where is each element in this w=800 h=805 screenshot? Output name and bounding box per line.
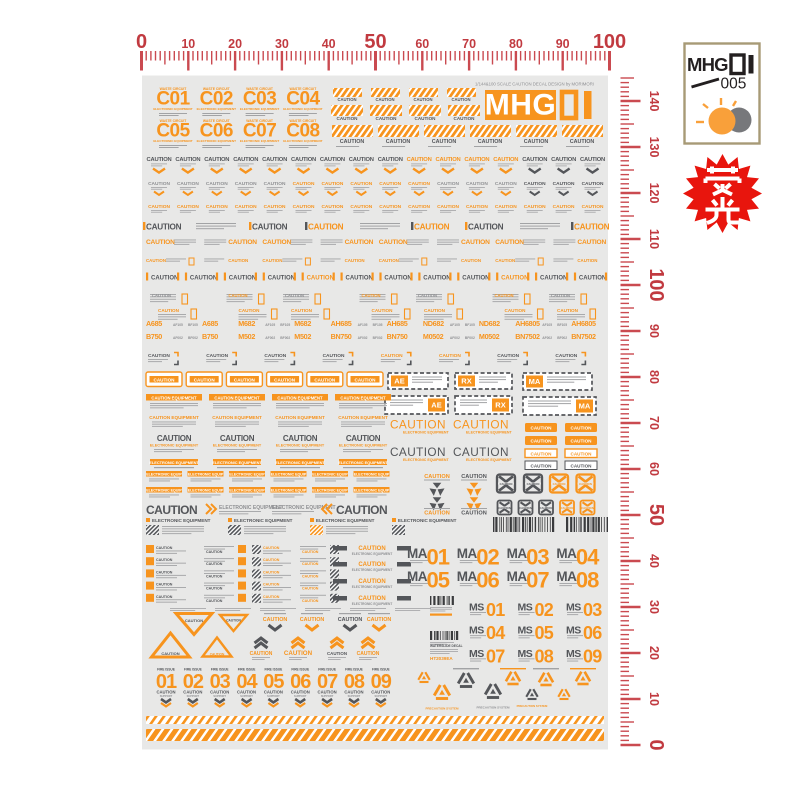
svg-text:CAUTION: CAUTION bbox=[338, 617, 363, 623]
svg-text:CAUTION: CAUTION bbox=[175, 157, 200, 163]
svg-text:ELECTRONIC EQUIP: ELECTRONIC EQUIP bbox=[188, 472, 224, 476]
svg-text:CAUTION: CAUTION bbox=[156, 570, 173, 574]
svg-text:01: 01 bbox=[427, 545, 450, 570]
svg-text:CAUTION: CAUTION bbox=[390, 445, 446, 459]
svg-text:CAUTION: CAUTION bbox=[571, 439, 593, 444]
svg-text:M0502: M0502 bbox=[479, 332, 500, 341]
svg-text:BN7502: BN7502 bbox=[571, 332, 596, 341]
svg-text:CAUTION: CAUTION bbox=[293, 204, 315, 210]
svg-text:CAUTION: CAUTION bbox=[264, 353, 286, 359]
svg-text:ELECTRONIC EQUIPMENT: ELECTRONIC EQUIPMENT bbox=[149, 460, 199, 465]
svg-text:CAUTION: CAUTION bbox=[349, 157, 374, 163]
svg-text:CAUTION: CAUTION bbox=[220, 434, 255, 443]
svg-text:CAUTION: CAUTION bbox=[577, 239, 606, 246]
svg-text:CAUTION: CAUTION bbox=[379, 204, 401, 210]
svg-text:MA: MA bbox=[407, 546, 428, 561]
svg-text:CAUTION: CAUTION bbox=[274, 378, 296, 383]
svg-text:CAUTION: CAUTION bbox=[478, 139, 503, 145]
svg-text:AF105: AF105 bbox=[265, 323, 275, 327]
svg-text:CAUTION: CAUTION bbox=[579, 276, 606, 282]
svg-text:CAUTION: CAUTION bbox=[505, 308, 527, 313]
svg-text:MS: MS bbox=[518, 648, 533, 660]
svg-text:CAUTION: CAUTION bbox=[283, 434, 318, 443]
svg-text:CAUTION: CAUTION bbox=[453, 445, 509, 459]
svg-text:CAUTION: CAUTION bbox=[580, 157, 605, 163]
svg-text:AF002: AF002 bbox=[358, 336, 368, 340]
svg-text:MA: MA bbox=[457, 546, 478, 561]
svg-text:CAUTION EQUIPMENT: CAUTION EQUIPMENT bbox=[149, 415, 199, 420]
svg-text:AF105: AF105 bbox=[542, 323, 552, 327]
svg-text:MA: MA bbox=[507, 546, 528, 561]
svg-text:ELECTRONIC EQUIPMENT: ELECTRONIC EQUIPMENT bbox=[339, 444, 388, 448]
svg-text:ELECTRONIC EQUIPMENT: ELECTRONIC EQUIPMENT bbox=[152, 518, 211, 523]
svg-text:CAUTION: CAUTION bbox=[263, 583, 280, 587]
svg-text:140: 140 bbox=[647, 91, 661, 112]
svg-text:ELECTRONIC EQUIPMENT: ELECTRONIC EQUIPMENT bbox=[240, 107, 279, 111]
svg-text:20: 20 bbox=[647, 646, 661, 660]
svg-text:ELECTRONIC EQUIPMENT: ELECTRONIC EQUIPMENT bbox=[234, 518, 293, 523]
svg-text:RX: RX bbox=[495, 401, 505, 410]
svg-text:CAUTION: CAUTION bbox=[264, 204, 286, 210]
svg-text:MHG: MHG bbox=[687, 54, 728, 75]
svg-text:MS: MS bbox=[566, 602, 581, 614]
svg-text:CAUTION: CAUTION bbox=[158, 308, 180, 313]
svg-text:CAUTION: CAUTION bbox=[206, 587, 223, 591]
svg-text:MS: MS bbox=[518, 602, 533, 614]
svg-text:CAUTION: CAUTION bbox=[146, 258, 166, 263]
svg-text:CAUTION: CAUTION bbox=[194, 378, 216, 383]
svg-text:CAUTION: CAUTION bbox=[206, 204, 228, 210]
svg-text:HT2039EA: HT2039EA bbox=[430, 656, 453, 661]
svg-text:BF002: BF002 bbox=[373, 336, 383, 340]
svg-text:CAUTION: CAUTION bbox=[229, 293, 248, 298]
svg-text:CAUTION: CAUTION bbox=[571, 451, 593, 456]
svg-text:CAUTION: CAUTION bbox=[262, 157, 287, 163]
svg-text:ELECTRONIC EQUIPMENT: ELECTRONIC EQUIPMENT bbox=[398, 518, 457, 523]
svg-text:CAUTION: CAUTION bbox=[263, 595, 280, 599]
svg-text:ELECTRONIC EQUIPMENT: ELECTRONIC EQUIPMENT bbox=[197, 107, 236, 111]
svg-text:CAUTION: CAUTION bbox=[386, 139, 411, 145]
svg-text:ELECTRONIC EQUIPMENT: ELECTRONIC EQUIPMENT bbox=[283, 107, 322, 111]
svg-text:BF002: BF002 bbox=[465, 336, 475, 340]
svg-text:MS: MS bbox=[566, 648, 581, 660]
svg-text:CAUTION: CAUTION bbox=[357, 651, 380, 657]
svg-text:CAUTION: CAUTION bbox=[350, 204, 372, 210]
svg-text:CAUTION: CAUTION bbox=[424, 308, 446, 313]
svg-text:BF105: BF105 bbox=[280, 323, 290, 327]
svg-text:CAUTION: CAUTION bbox=[263, 558, 280, 562]
svg-text:05: 05 bbox=[427, 568, 450, 593]
svg-text:CAUTION: CAUTION bbox=[424, 474, 449, 480]
svg-text:ELECTRONIC EQUIP: ELECTRONIC EQUIP bbox=[354, 488, 390, 492]
svg-text:01: 01 bbox=[486, 600, 505, 620]
svg-text:BN7502: BN7502 bbox=[515, 332, 540, 341]
svg-text:CAUTION: CAUTION bbox=[337, 116, 359, 121]
svg-text:CAUTION: CAUTION bbox=[551, 157, 576, 163]
svg-text:ELECTRONIC EQUIPMENT: ELECTRONIC EQUIPMENT bbox=[338, 460, 388, 465]
svg-text:CAUTION: CAUTION bbox=[146, 157, 171, 163]
svg-text:ELECTRONIC EQUIPMENT: ELECTRONIC EQUIPMENT bbox=[352, 552, 393, 556]
svg-text:CAUTION: CAUTION bbox=[561, 506, 574, 510]
svg-text:CAUTION: CAUTION bbox=[148, 353, 170, 359]
svg-text:60: 60 bbox=[415, 37, 429, 51]
svg-text:CAUTION: CAUTION bbox=[337, 97, 356, 102]
svg-text:CAUTION: CAUTION bbox=[183, 690, 202, 695]
svg-text:CAUTION: CAUTION bbox=[234, 378, 256, 383]
svg-text:CAUTION: CAUTION bbox=[413, 97, 432, 102]
svg-text:CAUTION: CAUTION bbox=[464, 157, 489, 163]
svg-text:ELECTRONIC EQUIPMENT: ELECTRONIC EQUIPMENT bbox=[466, 431, 513, 435]
svg-text:CAUTION: CAUTION bbox=[345, 258, 365, 263]
svg-text:CAUTION: CAUTION bbox=[177, 181, 199, 187]
svg-text:80: 80 bbox=[647, 370, 661, 384]
svg-text:CAUTION: CAUTION bbox=[302, 562, 319, 566]
svg-text:100: 100 bbox=[593, 31, 626, 53]
svg-text:CAUTION: CAUTION bbox=[291, 157, 316, 163]
svg-text:RX: RX bbox=[461, 377, 471, 386]
svg-text:ND682: ND682 bbox=[479, 319, 500, 328]
svg-text:WATERSLIDE DECAL: WATERSLIDE DECAL bbox=[430, 644, 463, 648]
svg-text:CAUTION: CAUTION bbox=[346, 276, 373, 282]
svg-text:CAUTION: CAUTION bbox=[376, 116, 398, 121]
svg-text:CAUTION: CAUTION bbox=[285, 293, 304, 298]
svg-text:CAUTION: CAUTION bbox=[237, 690, 256, 695]
svg-text:CAUTION: CAUTION bbox=[414, 223, 450, 232]
svg-text:CAUTION: CAUTION bbox=[345, 239, 374, 246]
svg-text:CAUTION: CAUTION bbox=[264, 181, 286, 187]
svg-text:BF002: BF002 bbox=[188, 336, 198, 340]
svg-text:03: 03 bbox=[526, 545, 549, 570]
svg-text:CAUTION: CAUTION bbox=[454, 116, 476, 121]
svg-text:CAUTION: CAUTION bbox=[185, 618, 203, 623]
svg-text:CAUTION: CAUTION bbox=[252, 223, 288, 232]
svg-text:CAUTION: CAUTION bbox=[367, 617, 392, 623]
svg-text:ELECTRONIC EQUIP: ELECTRONIC EQUIP bbox=[188, 488, 224, 492]
svg-text:08: 08 bbox=[576, 568, 599, 593]
svg-text:02: 02 bbox=[535, 600, 554, 620]
svg-text:M682: M682 bbox=[294, 319, 311, 328]
svg-text:CAUTION EQUIPMENT: CAUTION EQUIPMENT bbox=[275, 415, 325, 420]
svg-text:CAUTION: CAUTION bbox=[531, 451, 553, 456]
svg-text:CAUTION: CAUTION bbox=[574, 223, 610, 232]
svg-text:CAUTION: CAUTION bbox=[263, 570, 280, 574]
svg-text:70: 70 bbox=[647, 416, 661, 430]
svg-text:CAUTION: CAUTION bbox=[423, 276, 450, 282]
svg-text:CAUTION: CAUTION bbox=[320, 157, 345, 163]
svg-text:CAUTION: CAUTION bbox=[154, 378, 176, 383]
svg-text:CAUTION: CAUTION bbox=[581, 506, 594, 510]
svg-text:CAUTION: CAUTION bbox=[501, 276, 528, 282]
svg-text:CAUTION: CAUTION bbox=[151, 276, 178, 282]
svg-text:CAUTION: CAUTION bbox=[408, 181, 430, 187]
svg-text:CAUTION: CAUTION bbox=[148, 181, 170, 187]
svg-text:20: 20 bbox=[228, 37, 242, 51]
svg-text:CAUTION: CAUTION bbox=[379, 239, 408, 246]
svg-text:ELECTRONIC EQUIPMENT: ELECTRONIC EQUIPMENT bbox=[153, 139, 192, 143]
svg-text:CAUTION: CAUTION bbox=[318, 690, 337, 695]
svg-text:CAUTION: CAUTION bbox=[495, 204, 517, 210]
svg-text:0: 0 bbox=[136, 31, 147, 53]
svg-text:CAUTION: CAUTION bbox=[375, 97, 394, 102]
svg-text:A685: A685 bbox=[146, 319, 162, 328]
svg-text:MS: MS bbox=[469, 625, 484, 637]
svg-text:SUPPORT: SUPPORT bbox=[187, 694, 200, 698]
svg-text:07: 07 bbox=[526, 568, 549, 593]
svg-text:10: 10 bbox=[647, 692, 661, 706]
svg-text:CAUTION EQUIPMENT: CAUTION EQUIPMENT bbox=[151, 396, 197, 401]
svg-text:CAUTION: CAUTION bbox=[579, 482, 592, 486]
svg-text:AF105: AF105 bbox=[450, 323, 460, 327]
svg-text:CAUTION: CAUTION bbox=[291, 308, 313, 313]
svg-text:90: 90 bbox=[556, 37, 570, 51]
svg-text:CAUTION: CAUTION bbox=[432, 139, 457, 145]
svg-text:A685: A685 bbox=[202, 319, 218, 328]
svg-text:CAUTION: CAUTION bbox=[302, 550, 319, 554]
svg-text:ELECTRONIC EQUIP: ELECTRONIC EQUIP bbox=[271, 472, 307, 476]
svg-text:05: 05 bbox=[535, 623, 554, 643]
svg-text:CAUTION: CAUTION bbox=[418, 293, 437, 298]
svg-text:60: 60 bbox=[647, 462, 661, 476]
svg-text:CAUTION: CAUTION bbox=[302, 587, 319, 591]
svg-text:ELECTRONIC EQUIPMENT: ELECTRONIC EQUIPMENT bbox=[276, 444, 325, 448]
svg-text:CAUTION: CAUTION bbox=[468, 223, 504, 232]
svg-text:MA: MA bbox=[457, 569, 478, 584]
svg-text:CAUTION: CAUTION bbox=[497, 353, 519, 359]
svg-text:PRECAUTION SYSTEM: PRECAUTION SYSTEM bbox=[517, 704, 548, 708]
svg-text:06: 06 bbox=[476, 568, 499, 593]
svg-text:120: 120 bbox=[647, 183, 661, 204]
svg-text:CAUTION: CAUTION bbox=[146, 503, 197, 517]
svg-text:CAUTION: CAUTION bbox=[378, 157, 403, 163]
svg-text:CAUTION: CAUTION bbox=[461, 474, 486, 480]
svg-text:CAUTION: CAUTION bbox=[314, 378, 336, 383]
svg-text:M502: M502 bbox=[294, 332, 311, 341]
svg-text:BN750: BN750 bbox=[331, 332, 352, 341]
svg-text:CAUTION EQUIPMENT: CAUTION EQUIPMENT bbox=[338, 415, 388, 420]
svg-text:MS: MS bbox=[518, 625, 533, 637]
svg-text:MHG: MHG bbox=[485, 89, 557, 122]
svg-text:CAUTION: CAUTION bbox=[156, 595, 173, 599]
svg-text:MA: MA bbox=[556, 546, 577, 561]
svg-text:CAUTION: CAUTION bbox=[381, 353, 403, 359]
svg-text:CAUTION: CAUTION bbox=[284, 650, 313, 657]
svg-text:CAUTION: CAUTION bbox=[390, 418, 446, 432]
svg-text:CAUTION: CAUTION bbox=[466, 181, 488, 187]
svg-text:ELECTRONIC EQUIPMENT: ELECTRONIC EQUIPMENT bbox=[213, 444, 262, 448]
svg-text:CAUTION: CAUTION bbox=[439, 353, 461, 359]
svg-text:AH685: AH685 bbox=[331, 319, 352, 328]
svg-text:CAUTION: CAUTION bbox=[461, 239, 490, 246]
svg-text:1/144&100 SCALE CAUTION DECAL: 1/144&100 SCALE CAUTION DECAL DESIGN by … bbox=[475, 82, 594, 87]
svg-text:CAUTION: CAUTION bbox=[206, 574, 223, 578]
svg-text:CAUTION EQUIPMENT: CAUTION EQUIPMENT bbox=[277, 396, 323, 401]
svg-text:AF002: AF002 bbox=[173, 336, 183, 340]
svg-text:CAUTION: CAUTION bbox=[519, 506, 532, 510]
svg-text:CAUTION: CAUTION bbox=[553, 181, 575, 187]
svg-text:130: 130 bbox=[647, 137, 661, 158]
svg-text:ND682: ND682 bbox=[423, 319, 444, 328]
svg-text:CAUTION: CAUTION bbox=[336, 503, 387, 517]
svg-text:BF105: BF105 bbox=[188, 323, 198, 327]
svg-text:CAUTION: CAUTION bbox=[531, 439, 553, 444]
svg-text:ELECTRONIC EQUIPMENT: ELECTRONIC EQUIPMENT bbox=[403, 458, 450, 462]
svg-text:MA: MA bbox=[507, 569, 528, 584]
svg-text:CAUTION: CAUTION bbox=[527, 482, 540, 486]
svg-text:CAUTION: CAUTION bbox=[327, 651, 347, 656]
svg-text:CAUTION: CAUTION bbox=[551, 293, 570, 298]
svg-text:CAUTION: CAUTION bbox=[226, 619, 241, 623]
svg-text:ELECTRONIC EQUIP: ELECTRONIC EQUIP bbox=[229, 488, 265, 492]
svg-text:ELECTRONIC EQUIPMENT: ELECTRONIC EQUIPMENT bbox=[352, 585, 393, 589]
svg-text:CAUTION: CAUTION bbox=[321, 204, 343, 210]
svg-text:CAUTION: CAUTION bbox=[323, 353, 345, 359]
svg-text:ELECTRONIC EQUIPMENT: ELECTRONIC EQUIPMENT bbox=[212, 460, 262, 465]
svg-text:ELECTRONIC EQUIPMENT: ELECTRONIC EQUIPMENT bbox=[352, 568, 393, 572]
svg-text:30: 30 bbox=[275, 37, 289, 51]
svg-text:CAUTION: CAUTION bbox=[293, 181, 315, 187]
svg-text:CAUTION: CAUTION bbox=[379, 181, 401, 187]
svg-text:ELECTRONIC EQUIPMENT: ELECTRONIC EQUIPMENT bbox=[466, 458, 513, 462]
svg-text:CAUTION: CAUTION bbox=[557, 308, 579, 313]
svg-text:CAUTION: CAUTION bbox=[146, 239, 175, 246]
svg-text:CAUTION: CAUTION bbox=[524, 204, 546, 210]
svg-text:CAUTION: CAUTION bbox=[540, 506, 553, 510]
svg-text:CAUTION: CAUTION bbox=[498, 506, 511, 510]
svg-text:SUPPORT: SUPPORT bbox=[267, 694, 280, 698]
svg-text:CAUTION: CAUTION bbox=[262, 239, 291, 246]
svg-text:CAUTION: CAUTION bbox=[156, 690, 175, 695]
svg-text:CAUTION: CAUTION bbox=[437, 181, 459, 187]
svg-text:MS: MS bbox=[469, 602, 484, 614]
svg-text:30: 30 bbox=[647, 600, 661, 614]
svg-text:CAUTION: CAUTION bbox=[263, 617, 288, 623]
svg-text:CAUTION: CAUTION bbox=[582, 204, 604, 210]
svg-text:AF002: AF002 bbox=[450, 336, 460, 340]
svg-text:02: 02 bbox=[476, 545, 499, 570]
svg-text:CAUTION EQUIPMENT: CAUTION EQUIPMENT bbox=[340, 396, 386, 401]
svg-text:MS: MS bbox=[566, 625, 581, 637]
svg-text:04: 04 bbox=[486, 623, 505, 643]
svg-text:CAUTION EQUIPMENT: CAUTION EQUIPMENT bbox=[212, 415, 262, 420]
svg-text:CAUTION: CAUTION bbox=[577, 258, 597, 263]
svg-text:ELECTRONIC EQUIPMENT: ELECTRONIC EQUIPMENT bbox=[275, 460, 325, 465]
svg-text:ELECTRONIC EQUIPMENT: ELECTRONIC EQUIPMENT bbox=[240, 139, 279, 143]
svg-text:09: 09 bbox=[583, 646, 602, 666]
svg-text:AE: AE bbox=[394, 377, 404, 386]
svg-text:CAUTION: CAUTION bbox=[355, 378, 377, 383]
svg-text:CAUTION: CAUTION bbox=[408, 204, 430, 210]
svg-text:M0502: M0502 bbox=[423, 332, 444, 341]
svg-text:CAUTION: CAUTION bbox=[210, 653, 225, 657]
svg-text:08: 08 bbox=[535, 646, 554, 666]
svg-text:CAUTION: CAUTION bbox=[146, 223, 182, 232]
svg-text:04: 04 bbox=[576, 545, 600, 570]
svg-text:CAUTION: CAUTION bbox=[156, 583, 173, 587]
svg-text:SUPPORT: SUPPORT bbox=[348, 694, 361, 698]
svg-text:BN750: BN750 bbox=[387, 332, 408, 341]
svg-text:CAUTION: CAUTION bbox=[462, 276, 489, 282]
svg-text:SUPPORT: SUPPORT bbox=[240, 694, 253, 698]
svg-text:CAUTION: CAUTION bbox=[495, 181, 517, 187]
svg-text:BF105: BF105 bbox=[373, 323, 383, 327]
svg-text:CAUTION: CAUTION bbox=[206, 181, 228, 187]
svg-text:110: 110 bbox=[647, 229, 661, 249]
svg-text:SUPPORT: SUPPORT bbox=[321, 694, 334, 698]
svg-text:BF002: BF002 bbox=[557, 336, 567, 340]
svg-text:MS: MS bbox=[469, 648, 484, 660]
svg-text:ELECTRONIC EQUIP: ELECTRONIC EQUIP bbox=[229, 472, 265, 476]
svg-text:CAUTION: CAUTION bbox=[300, 617, 325, 623]
svg-text:SUPPORT: SUPPORT bbox=[294, 694, 307, 698]
svg-text:PRECAUTION SYSTEM: PRECAUTION SYSTEM bbox=[425, 707, 459, 711]
svg-text:CAUTION: CAUTION bbox=[190, 276, 217, 282]
svg-text:CAUTION: CAUTION bbox=[571, 426, 593, 431]
svg-text:CAUTION: CAUTION bbox=[233, 157, 258, 163]
svg-text:07: 07 bbox=[486, 646, 505, 666]
svg-text:CAUTION: CAUTION bbox=[264, 690, 283, 695]
svg-text:CAUTION: CAUTION bbox=[555, 353, 577, 359]
svg-text:CAUTION: CAUTION bbox=[302, 599, 319, 603]
svg-text:SUPPORT: SUPPORT bbox=[213, 694, 226, 698]
svg-text:10: 10 bbox=[181, 37, 195, 51]
svg-text:70: 70 bbox=[462, 37, 476, 51]
svg-text:CAUTION: CAUTION bbox=[206, 353, 228, 359]
svg-text:CAUTION: CAUTION bbox=[372, 308, 394, 313]
svg-text:CAUTION: CAUTION bbox=[210, 690, 229, 695]
svg-text:CAUTION: CAUTION bbox=[451, 97, 470, 102]
svg-text:ELECTRONIC EQUIPMENT: ELECTRONIC EQUIPMENT bbox=[197, 139, 236, 143]
svg-text:90: 90 bbox=[647, 324, 661, 338]
svg-text:005: 005 bbox=[721, 76, 747, 93]
svg-text:CAUTION EQUIPMENT: CAUTION EQUIPMENT bbox=[214, 396, 260, 401]
svg-text:ELECTRONIC EQUIPMENT: ELECTRONIC EQUIPMENT bbox=[403, 431, 450, 435]
svg-text:CAUTION: CAUTION bbox=[500, 482, 513, 486]
svg-text:CAUTION: CAUTION bbox=[250, 651, 273, 657]
svg-text:CAUTION: CAUTION bbox=[362, 293, 381, 298]
svg-text:ELECTRONIC EQUIPMENT: ELECTRONIC EQUIPMENT bbox=[316, 518, 375, 523]
svg-text:CAUTION: CAUTION bbox=[321, 181, 343, 187]
svg-text:AF105: AF105 bbox=[358, 323, 368, 327]
svg-text:CAUTION: CAUTION bbox=[493, 157, 518, 163]
svg-text:CAUTION: CAUTION bbox=[461, 258, 481, 263]
svg-text:ELECTRONIC EQUIPMENT: ELECTRONIC EQUIPMENT bbox=[150, 444, 199, 448]
svg-text:CAUTION: CAUTION bbox=[453, 418, 509, 432]
svg-text:SUPPORT: SUPPORT bbox=[160, 694, 173, 698]
svg-text:ELECTRONIC EQUIP: ELECTRONIC EQUIP bbox=[146, 472, 182, 476]
svg-text:CAUTION: CAUTION bbox=[435, 157, 460, 163]
svg-text:CAUTION: CAUTION bbox=[524, 139, 549, 145]
svg-text:CAUTION: CAUTION bbox=[307, 276, 334, 282]
svg-text:MA: MA bbox=[407, 569, 428, 584]
svg-text:AE: AE bbox=[431, 401, 441, 410]
svg-text:CAUTION: CAUTION bbox=[148, 204, 170, 210]
svg-text:ELECTRONIC EQUIP: ELECTRONIC EQUIP bbox=[271, 488, 307, 492]
svg-text:CAUTION: CAUTION bbox=[346, 434, 381, 443]
svg-text:100: 100 bbox=[645, 268, 667, 301]
svg-text:BF105: BF105 bbox=[557, 323, 567, 327]
svg-text:AH6805: AH6805 bbox=[571, 319, 596, 328]
svg-text:ELECTRONIC EQUIPMENT: ELECTRONIC EQUIPMENT bbox=[283, 139, 322, 143]
svg-text:CAUTION: CAUTION bbox=[206, 562, 223, 566]
svg-text:CAUTION: CAUTION bbox=[540, 276, 567, 282]
svg-text:ELECTRONIC EQUIP: ELECTRONIC EQUIP bbox=[312, 472, 348, 476]
svg-text:50: 50 bbox=[645, 504, 667, 526]
svg-text:BF105: BF105 bbox=[465, 323, 475, 327]
svg-text:CAUTION: CAUTION bbox=[350, 181, 372, 187]
svg-text:40: 40 bbox=[647, 554, 661, 568]
svg-text:CAUTION: CAUTION bbox=[522, 157, 547, 163]
svg-text:CAUTION: CAUTION bbox=[531, 426, 553, 431]
